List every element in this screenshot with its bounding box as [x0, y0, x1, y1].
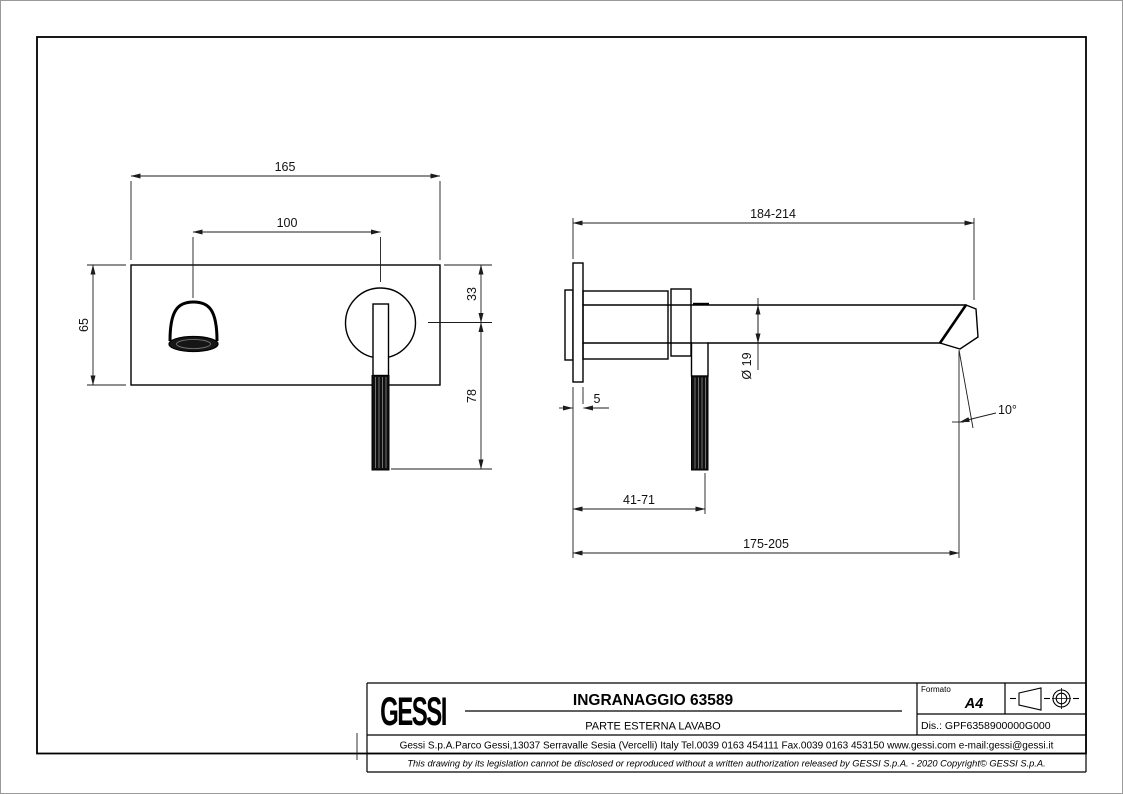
dim-plate-height: 65: [77, 318, 91, 332]
spout-tip-cut-edge: [940, 305, 966, 343]
drawing-page: 165 100 65 33 78: [0, 0, 1123, 794]
dim-handle-offset: 41-71: [623, 493, 655, 507]
front-view-dimensions: 165 100 65 33 78: [77, 160, 492, 469]
drawing-frame: [37, 37, 1086, 754]
technical-drawing: 165 100 65 33 78: [0, 0, 1123, 794]
side-view-dimensions: 184-214 Ø 19 5 41-71 175-205 10°: [559, 207, 1017, 558]
first-angle-projection-icon: [1010, 688, 1079, 710]
handle-knurl-front: [372, 376, 389, 471]
title-block: GESSI INGRANAGGIO 63589 PARTE ESTERNA LA…: [367, 683, 1086, 772]
dim-plate-thickness: 5: [594, 392, 601, 406]
cartridge-ring: [671, 289, 691, 356]
wall-flange: [573, 263, 583, 382]
dim-lower-reach: 175-205: [743, 537, 789, 551]
mounting-plate: [131, 265, 440, 385]
format-value: A4: [964, 696, 984, 712]
spout-front: [170, 302, 217, 341]
drawing-subtitle: PARTE ESTERNA LAVABO: [585, 721, 721, 733]
spout-tip: [940, 305, 978, 349]
dim-handle-below-axis: 78: [465, 389, 479, 403]
dim-axis-offset-top: 33: [465, 287, 479, 301]
front-view: 165 100 65 33 78: [77, 160, 492, 470]
legal-disclaimer: This drawing by its legislation cannot b…: [407, 759, 1045, 769]
dim-spout-angle: 10°: [998, 403, 1017, 417]
inwall-body: [565, 290, 573, 360]
side-view: 184-214 Ø 19 5 41-71 175-205 10°: [559, 207, 1017, 558]
dim-reach: 184-214: [750, 207, 796, 221]
sheet-frame: [1, 1, 1123, 794]
handle-collar-side: [692, 343, 709, 376]
format-label: Formato: [921, 685, 951, 694]
drawing-number: Dis.: GPF6358900000G000: [921, 720, 1051, 732]
company-address: Gessi S.p.A.Parco Gessi,13037 Serravalle…: [400, 741, 1054, 752]
handle-rod-front: [373, 304, 389, 376]
dim-plate-width: 165: [275, 160, 296, 174]
drawing-title: INGRANAGGIO 63589: [573, 692, 734, 709]
dim-spout-diameter: Ø 19: [740, 352, 754, 379]
page-border: [1, 1, 1123, 794]
dim-hole-spacing: 100: [277, 216, 298, 230]
mixer-body-side: [583, 291, 668, 359]
gessi-logo: GESSI: [380, 689, 446, 734]
